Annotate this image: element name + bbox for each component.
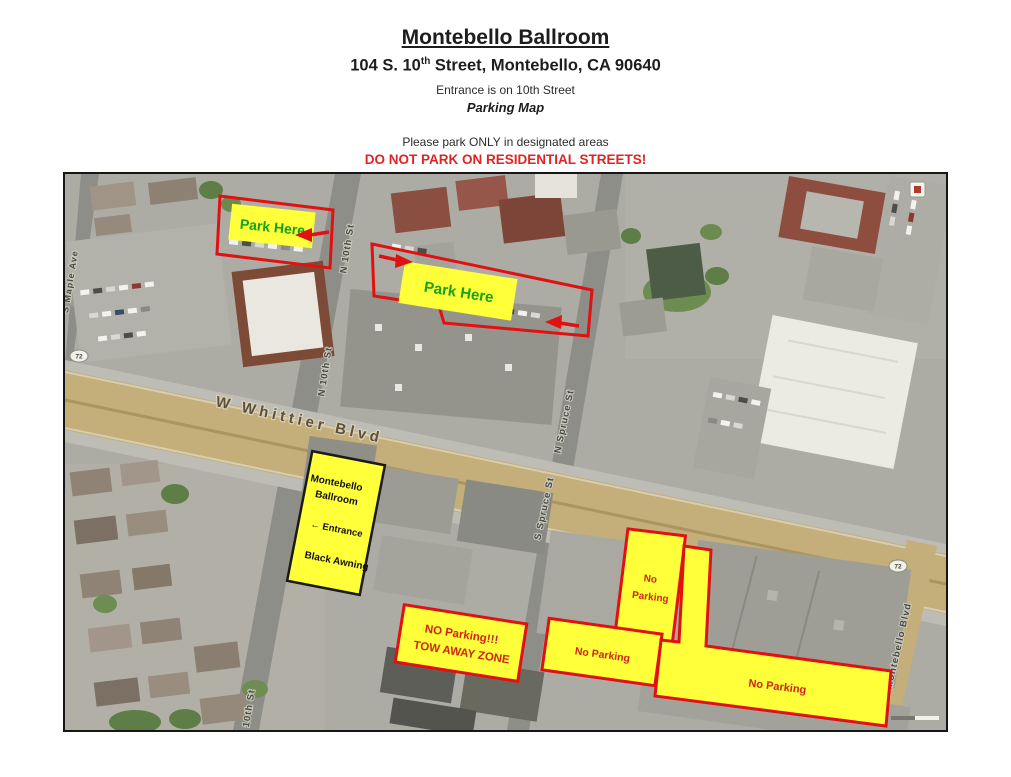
house <box>120 460 160 486</box>
address-line: 104 S. 10th Street, Montebello, CA 90640 <box>0 56 1011 76</box>
residential-warning: DO NOT PARK ON RESIDENTIAL STREETS! <box>0 152 1011 167</box>
tree <box>169 709 201 729</box>
house <box>74 516 119 545</box>
parking-map-image: W Whittier Blvd N 10th St N 10th St S 10… <box>63 172 948 732</box>
aerial-map: W Whittier Blvd N 10th St N 10th St S 10… <box>65 174 946 730</box>
address-sup: th <box>421 56 430 67</box>
no-parking-vertical-line1: No <box>643 573 658 586</box>
house <box>70 468 113 497</box>
scale-bar-segment <box>891 716 915 720</box>
document-header: Montebello Ballroom 104 S. 10th Street, … <box>0 26 1011 167</box>
entrance-note: Entrance is on 10th Street <box>0 83 1011 97</box>
house-green-roof <box>646 243 706 301</box>
parking-map-subtitle: Parking Map <box>0 100 1011 115</box>
route-72-number: 72 <box>894 564 902 571</box>
house-red-roof <box>499 192 566 243</box>
building-gray <box>619 297 667 336</box>
building-gray <box>563 209 621 255</box>
tree <box>93 595 117 613</box>
route-72-number: 72 <box>75 354 83 361</box>
tree <box>621 228 641 244</box>
house-red-roof <box>391 187 451 234</box>
house <box>80 570 123 599</box>
house <box>194 641 241 672</box>
tree <box>705 267 729 285</box>
tree <box>700 224 722 240</box>
parking-lot-nw <box>66 223 232 363</box>
page-title: Montebello Ballroom <box>0 26 1011 50</box>
address-pre: 104 S. 10 <box>350 57 421 75</box>
tree <box>161 484 189 504</box>
building-white <box>535 174 577 198</box>
poi-marker-glyph <box>914 186 921 193</box>
parking-instruction: Please park ONLY in designated areas <box>0 135 1011 149</box>
building-white <box>243 272 324 356</box>
house <box>88 624 133 653</box>
address-post: Street, Montebello, CA 90640 <box>430 57 660 75</box>
house <box>132 564 172 590</box>
